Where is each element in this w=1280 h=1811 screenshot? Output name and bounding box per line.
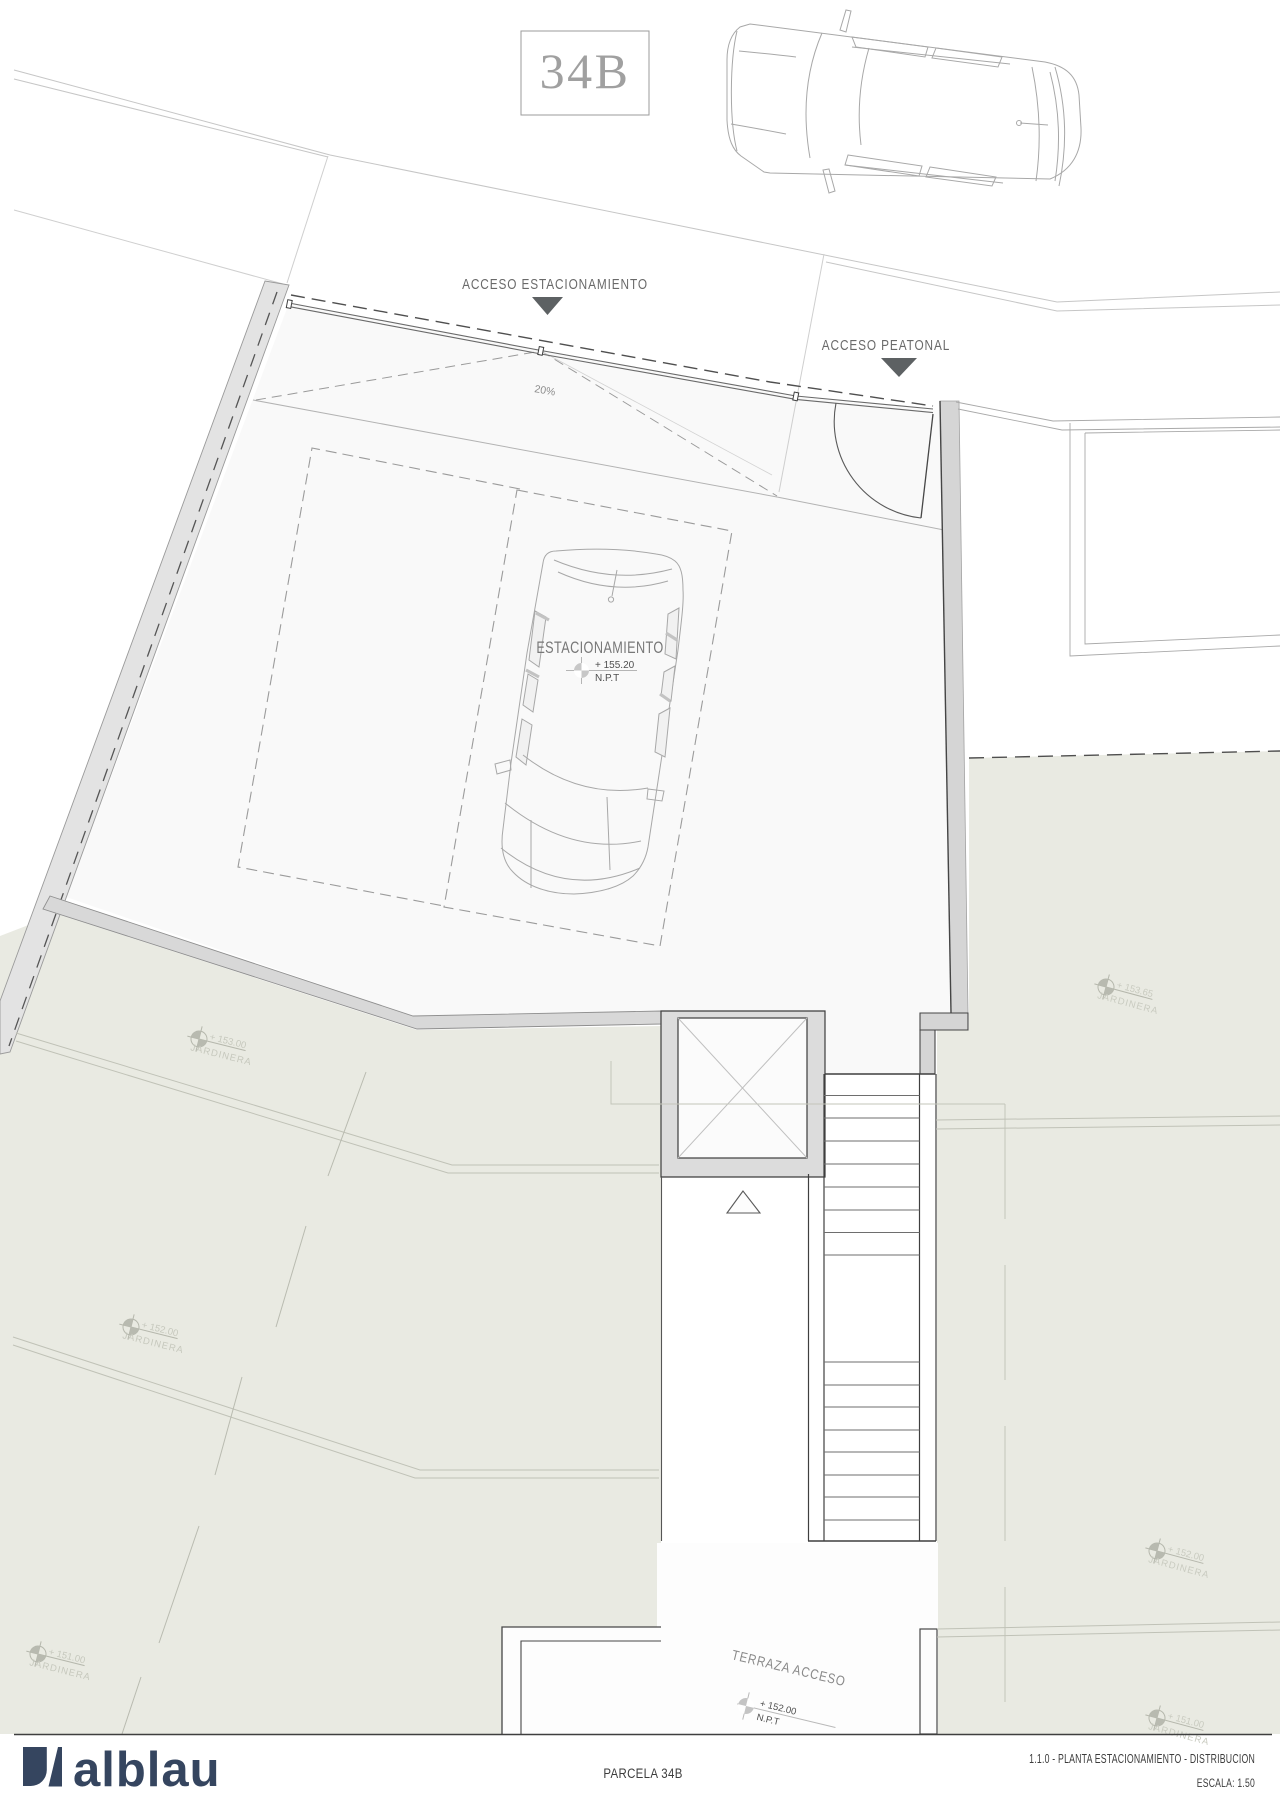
svg-text:N.P.T: N.P.T <box>595 673 619 684</box>
svg-text:ACCESO ESTACIONAMIENTO: ACCESO ESTACIONAMIENTO <box>462 276 648 292</box>
svg-text:PARCELA 34B: PARCELA 34B <box>603 1766 682 1781</box>
svg-text:ESCALA: 1.50: ESCALA: 1.50 <box>1197 1778 1255 1791</box>
svg-text:34B: 34B <box>540 43 631 99</box>
svg-text:ESTACIONAMIENTO: ESTACIONAMIENTO <box>536 640 663 658</box>
svg-text:+ 155.20: + 155.20 <box>595 660 635 671</box>
svg-text:alblau: alblau <box>73 1743 221 1797</box>
svg-text:1.1.0 - PLANTA ESTACIONAMIENTO: 1.1.0 - PLANTA ESTACIONAMIENTO - DISTRIB… <box>1029 1753 1255 1767</box>
svg-text:ACCESO PEATONAL: ACCESO PEATONAL <box>822 337 950 353</box>
